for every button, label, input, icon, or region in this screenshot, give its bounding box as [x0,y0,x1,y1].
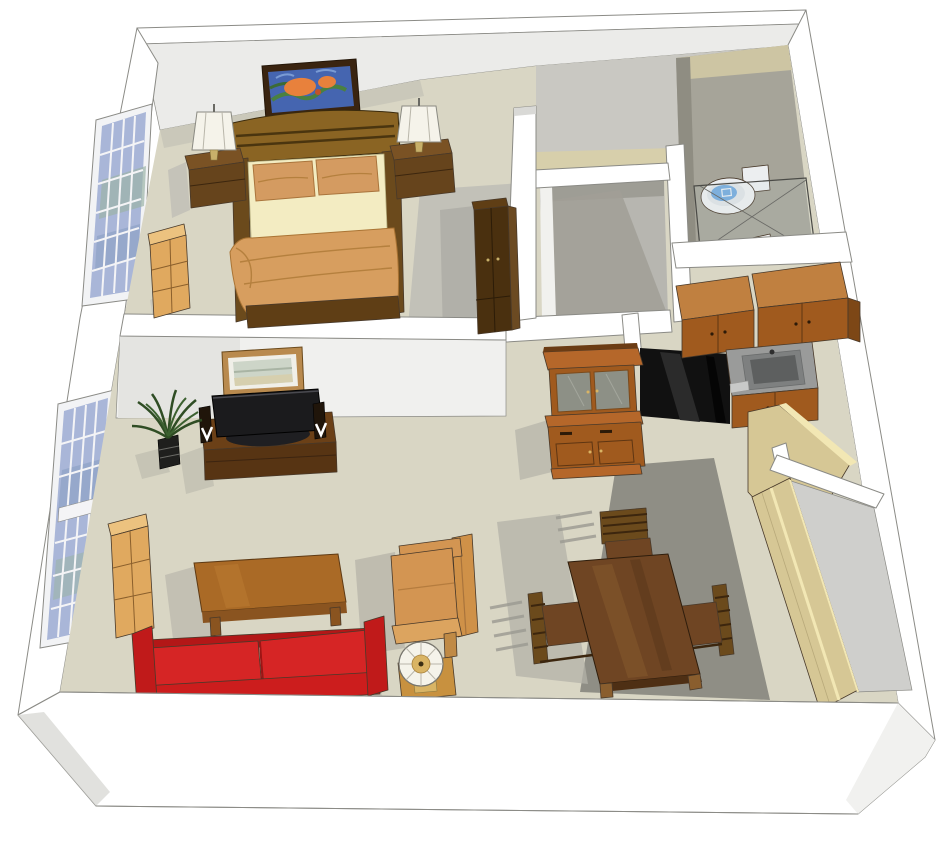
sink-counter [726,342,818,396]
hutch-cabinet [543,343,645,479]
hutch-glass-right [594,370,630,410]
round-table-lamp [399,642,443,686]
apartment-3d-floorplan [0,0,946,842]
bottom-wall [18,692,935,814]
speaker-left [199,406,212,443]
bedroom-dresser [148,224,190,318]
bottom-wall-face [18,692,935,814]
bed [228,110,404,328]
floorplan-canvas [0,0,946,842]
bookcase [108,514,154,638]
faucet [770,350,775,355]
wardrobe [472,198,520,334]
landscape-picture [222,347,304,397]
sofa-arm-right [364,616,388,696]
speaker-right [313,402,326,439]
pillow-right [316,156,379,195]
